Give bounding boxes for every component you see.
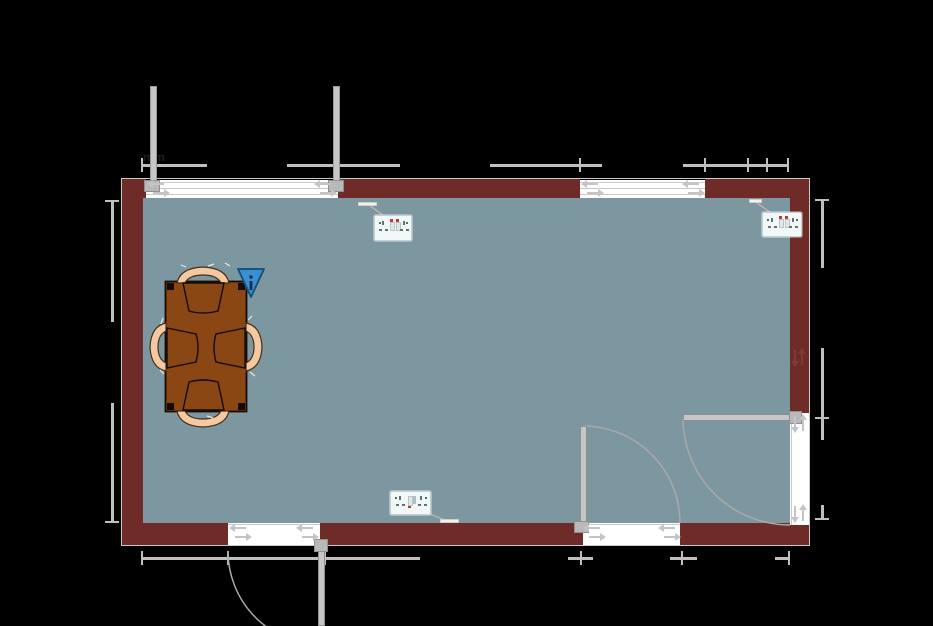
socket-pin-slot: [774, 226, 777, 228]
socket-pin-slot: [402, 504, 405, 506]
socket-pin-slot: [795, 226, 798, 228]
socket-switch: [779, 219, 784, 228]
sliding-arrow-icon: [320, 192, 333, 194]
socket-pin-slot: [789, 226, 792, 228]
sliding-arrow-icon: [302, 536, 315, 538]
chair-seat: [167, 328, 198, 368]
socket-dot: [425, 497, 427, 499]
socket-pin-slot: [403, 221, 405, 225]
sliding-arrow-icon: [585, 183, 598, 185]
floor-plan-canvas: mm: [0, 0, 933, 626]
socket-wall-mount: [749, 199, 762, 203]
sliding-arrow-icon: [794, 416, 796, 429]
socket-wall-mount: [440, 519, 459, 523]
sliding-arrow-icon: [686, 183, 699, 185]
socket-pin-slot: [424, 504, 427, 506]
sliding-arrow-icon: [300, 527, 313, 529]
double-socket-bottom[interactable]: [390, 491, 431, 515]
chair-seat: [214, 328, 245, 368]
label-mark: [161, 318, 163, 324]
sliding-arrow-icon: [587, 527, 600, 529]
sliding-arrow-icon: [802, 508, 804, 521]
socket-pin-slot: [768, 226, 771, 228]
socket-pin-slot: [399, 496, 401, 500]
socket-pin-slot: [400, 229, 403, 231]
socket-dot: [406, 222, 408, 224]
window-leaf-open[interactable]: [150, 86, 157, 182]
label-mark: [207, 416, 213, 418]
sliding-arrow-icon: [688, 192, 701, 194]
door-swing-arc: [583, 426, 680, 523]
sliding-arrow-icon: [318, 183, 331, 185]
label-mark: [208, 264, 214, 266]
faint-opening-arrow-icon: [801, 352, 803, 365]
socket-pin-slot: [396, 504, 399, 506]
socket-pin-slot: [385, 229, 388, 231]
socket-pin-slot: [406, 229, 409, 231]
socket-pin-slot: [792, 218, 794, 222]
chair-back: [246, 323, 262, 371]
chair-seat: [183, 380, 224, 410]
table-leg: [238, 403, 245, 410]
chair-seat: [183, 283, 224, 313]
sliding-arrow-icon: [233, 527, 246, 529]
sliding-arrow-icon: [662, 527, 675, 529]
socket-switch: [390, 222, 395, 231]
warning-bar: [250, 281, 253, 290]
socket-pin-slot: [379, 229, 382, 231]
double-socket-top-left[interactable]: [374, 215, 412, 241]
label-mark: [248, 316, 252, 320]
sliding-arrow-icon: [587, 192, 600, 194]
door-leaf-exterior[interactable]: [318, 551, 325, 626]
sliding-arrow-icon: [794, 506, 796, 519]
socket-pin-slot: [771, 218, 773, 222]
label-mark: [181, 265, 186, 267]
door-leaf-interior-right[interactable]: [683, 414, 790, 421]
warning-dot: [249, 275, 252, 278]
socket-dot: [767, 219, 769, 221]
socket-pin-slot: [382, 221, 384, 225]
socket-pin-slot: [418, 504, 421, 506]
sliding-arrow-icon: [589, 536, 602, 538]
socket-dot: [395, 497, 397, 499]
sliding-arrow-icon: [153, 192, 166, 194]
sliding-arrow-icon: [235, 536, 248, 538]
door-leaf-interior-bottom[interactable]: [580, 426, 587, 523]
sliding-arrow-icon: [151, 183, 164, 185]
plan-overlay: [0, 0, 933, 626]
label-mark: [225, 263, 230, 266]
chair-back: [150, 323, 166, 371]
table-leg: [167, 403, 174, 410]
door-swing-arc: [228, 551, 322, 626]
table-leg: [167, 283, 174, 290]
socket-wall-mount: [358, 202, 377, 206]
label-mark: [250, 372, 255, 376]
faint-opening-arrow-icon: [794, 350, 796, 363]
chair-back: [177, 411, 229, 427]
door-swing-arc: [683, 418, 790, 525]
socket-switch: [413, 496, 416, 504]
sliding-arrow-icon: [802, 418, 804, 431]
window-leaf-open[interactable]: [333, 86, 340, 182]
double-socket-top-right[interactable]: [762, 212, 802, 237]
socket-dot: [796, 219, 798, 221]
socket-pin-slot: [420, 496, 422, 500]
socket-dot: [379, 222, 381, 224]
sliding-arrow-icon: [664, 536, 677, 538]
